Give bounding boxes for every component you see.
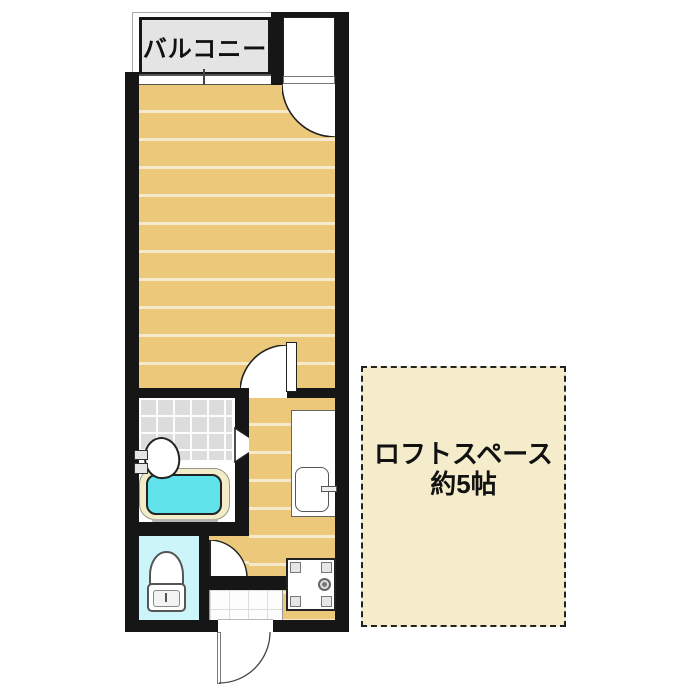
wall-left: [125, 72, 139, 632]
loft-label-line2: 約5帖: [430, 470, 496, 500]
room-door-swing-icon: [240, 345, 287, 392]
genkan: [209, 590, 283, 620]
entry-door-leaf: [283, 76, 335, 84]
wall-right: [335, 12, 349, 632]
entrance-door-swing-icon: [219, 632, 271, 684]
washer-pan-corner: [321, 596, 332, 607]
kitchen-faucet-icon: [321, 486, 337, 492]
washer-pan-corner: [290, 596, 301, 607]
entrance-opening: [218, 619, 273, 633]
entry-door-swing-icon: [282, 84, 335, 137]
floor-plan: バルコニー: [0, 0, 700, 700]
wall-mid-left: [125, 388, 245, 398]
bathtub-icon: [146, 474, 222, 515]
basin-faucet-icon-2: [134, 463, 148, 474]
loft-label-line1: ロフトスペース: [374, 440, 553, 470]
balcony-label: バルコニー: [143, 29, 268, 64]
washer-drain-dot: [322, 582, 327, 587]
entry-alcove: [283, 17, 335, 79]
washer-pan-corner: [321, 562, 332, 573]
toilet-flush-tick: [165, 593, 167, 602]
toilet-door-swing-icon: [209, 540, 248, 579]
loft-space: ロフトスペース 約5帖: [361, 366, 566, 627]
washer-pan-icon: [286, 558, 336, 611]
wall-bathroom-bottom: [125, 522, 249, 536]
balcony: バルコニー: [139, 17, 271, 75]
wall-entry-left: [271, 12, 283, 85]
washer-pan-corner: [290, 562, 301, 573]
basin-faucet-icon: [134, 450, 148, 460]
wall-genkan-top: [199, 576, 291, 590]
room-door-leaf: [286, 342, 297, 392]
